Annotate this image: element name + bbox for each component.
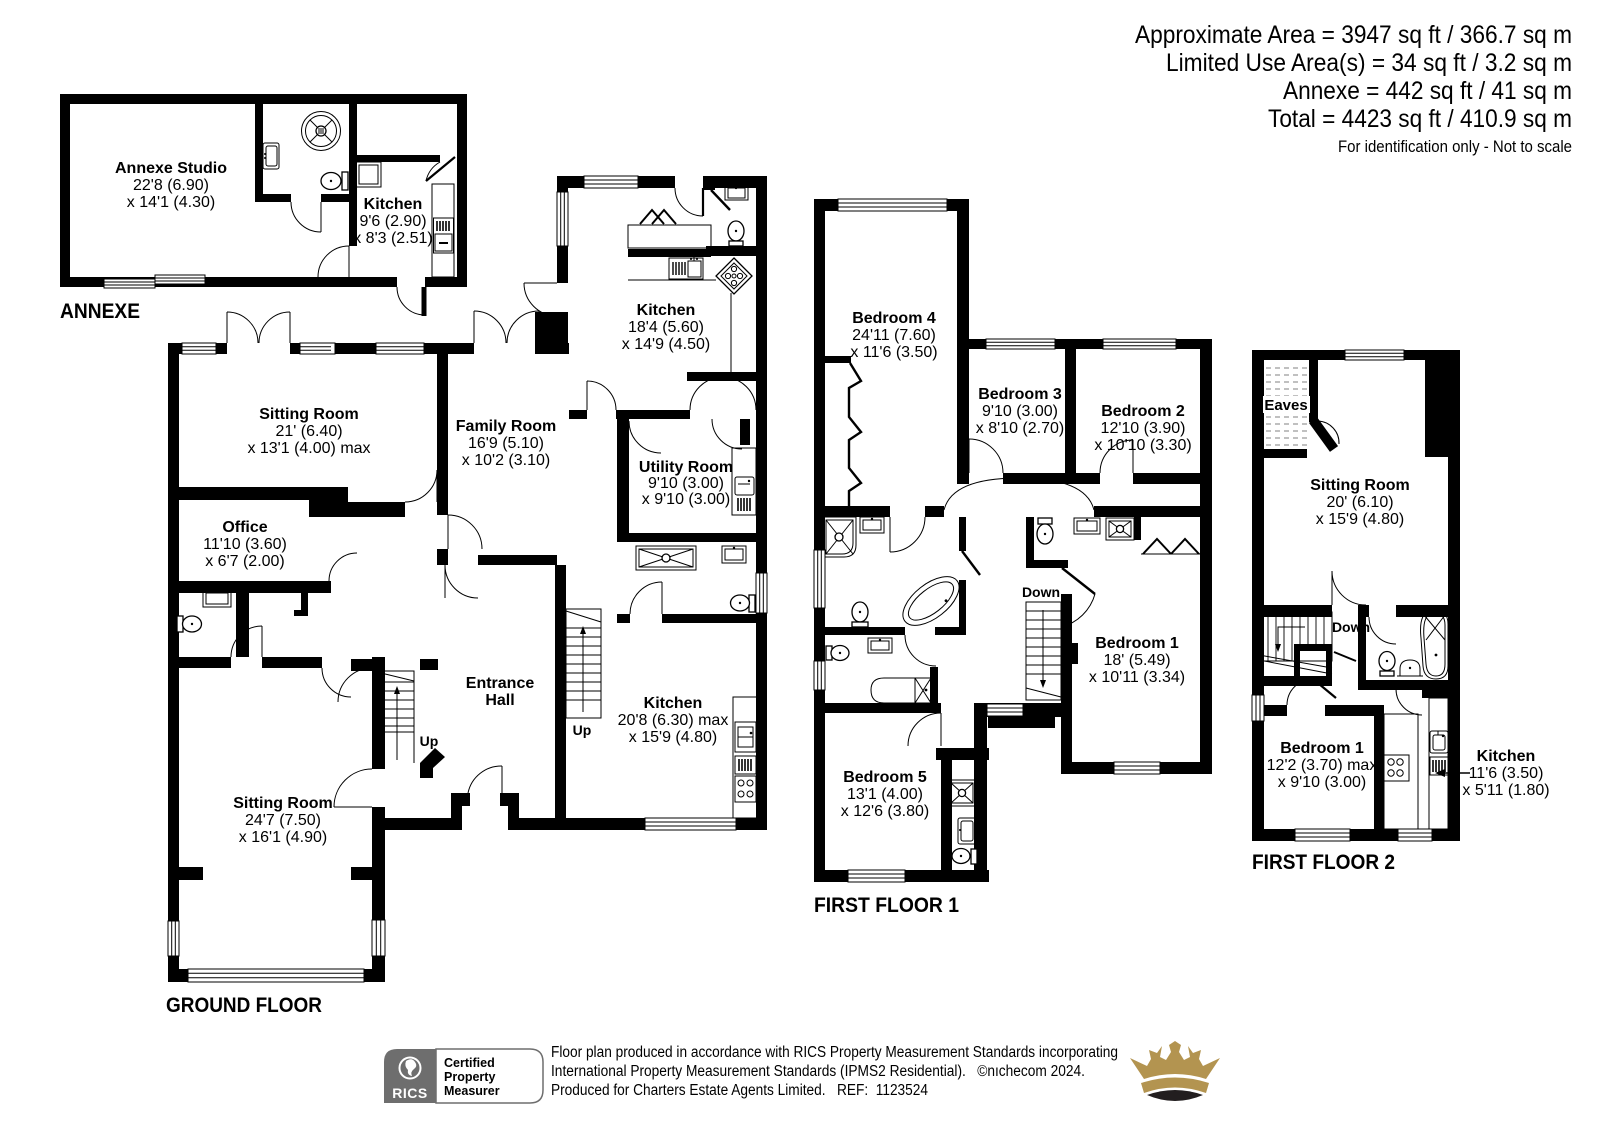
svg-text:Bedroom 2: Bedroom 2 bbox=[1101, 403, 1185, 420]
svg-text:Kitchen: Kitchen bbox=[637, 302, 696, 319]
svg-text:Kitchen: Kitchen bbox=[644, 695, 703, 712]
svg-text:Annexe = 442 sq ft / 41 sq m: Annexe = 442 sq ft / 41 sq m bbox=[1283, 77, 1572, 105]
svg-text:x 16'1 (4.90): x 16'1 (4.90) bbox=[239, 829, 327, 846]
svg-text:Produced for Charters Estate A: Produced for Charters Estate Agents Limi… bbox=[551, 1082, 928, 1099]
svg-text:GROUND FLOOR: GROUND FLOOR bbox=[166, 993, 322, 1017]
svg-text:x 15'9 (4.80): x 15'9 (4.80) bbox=[1316, 511, 1404, 528]
svg-text:For identification only - Not: For identification only - Not to scale bbox=[1338, 137, 1572, 156]
svg-text:Entrance: Entrance bbox=[466, 675, 535, 692]
svg-text:International Property Measure: International Property Measurement Stand… bbox=[551, 1063, 1085, 1080]
svg-text:Bedroom 5: Bedroom 5 bbox=[843, 769, 927, 786]
svg-text:x 10'10 (3.30): x 10'10 (3.30) bbox=[1094, 437, 1191, 454]
svg-text:Bedroom 4: Bedroom 4 bbox=[852, 310, 936, 327]
svg-text:11'6 (3.50): 11'6 (3.50) bbox=[1469, 765, 1544, 782]
svg-text:Certified: Certified bbox=[444, 1056, 495, 1070]
svg-text:x 11'6 (3.50): x 11'6 (3.50) bbox=[850, 344, 937, 361]
svg-text:Utility Room: Utility Room bbox=[639, 459, 733, 476]
svg-text:x 13'1 (4.00) max: x 13'1 (4.00) max bbox=[247, 440, 370, 457]
svg-text:24'7 (7.50): 24'7 (7.50) bbox=[245, 812, 321, 829]
svg-text:Approximate Area = 3947 sq ft: Approximate Area = 3947 sq ft / 366.7 sq… bbox=[1135, 21, 1572, 49]
svg-text:Kitchen: Kitchen bbox=[1477, 748, 1536, 765]
svg-text:x 6'7 (2.00): x 6'7 (2.00) bbox=[205, 553, 285, 570]
svg-text:Hall: Hall bbox=[485, 692, 514, 709]
svg-text:21' (6.40): 21' (6.40) bbox=[275, 423, 342, 440]
svg-text:11'10 (3.60): 11'10 (3.60) bbox=[203, 536, 287, 553]
svg-text:Property: Property bbox=[444, 1070, 495, 1084]
svg-text:FIRST FLOOR 1: FIRST FLOOR 1 bbox=[814, 893, 959, 917]
svg-text:x 8'10 (2.70): x 8'10 (2.70) bbox=[976, 420, 1064, 437]
svg-text:13'1 (4.00): 13'1 (4.00) bbox=[847, 786, 923, 803]
svg-text:x 12'6 (3.80): x 12'6 (3.80) bbox=[841, 803, 929, 820]
svg-text:Annexe Studio: Annexe Studio bbox=[115, 160, 227, 177]
svg-text:x 9'10 (3.00): x 9'10 (3.00) bbox=[642, 491, 730, 508]
svg-text:x 10'11 (3.34): x 10'11 (3.34) bbox=[1089, 669, 1185, 686]
svg-text:RICS: RICS bbox=[392, 1085, 427, 1101]
svg-text:24'11 (7.60): 24'11 (7.60) bbox=[852, 327, 936, 344]
svg-text:ANNEXE: ANNEXE bbox=[60, 299, 140, 323]
svg-text:Office: Office bbox=[222, 519, 267, 536]
svg-text:18' (5.49): 18' (5.49) bbox=[1103, 652, 1170, 669]
svg-text:20'8 (6.30) max: 20'8 (6.30) max bbox=[618, 712, 729, 729]
svg-text:x 8'3 (2.51): x 8'3 (2.51) bbox=[353, 230, 433, 247]
svg-text:20' (6.10): 20' (6.10) bbox=[1326, 494, 1393, 511]
svg-text:Down: Down bbox=[1022, 584, 1060, 600]
svg-text:Up: Up bbox=[573, 722, 592, 738]
svg-text:Bedroom 1: Bedroom 1 bbox=[1280, 740, 1364, 757]
svg-text:x 14'9 (4.50): x 14'9 (4.50) bbox=[622, 336, 710, 353]
svg-text:FIRST FLOOR 2: FIRST FLOOR 2 bbox=[1252, 850, 1395, 874]
svg-text:9'6 (2.90): 9'6 (2.90) bbox=[359, 213, 426, 230]
svg-text:Family Room: Family Room bbox=[456, 418, 556, 435]
svg-text:Limited Use Area(s) = 34 sq ft: Limited Use Area(s) = 34 sq ft / 3.2 sq … bbox=[1166, 49, 1572, 77]
svg-text:18'4 (5.60): 18'4 (5.60) bbox=[628, 319, 704, 336]
svg-text:x 14'1 (4.30): x 14'1 (4.30) bbox=[127, 194, 215, 211]
svg-text:x 9'10 (3.00): x 9'10 (3.00) bbox=[1278, 774, 1366, 791]
svg-text:Bedroom 3: Bedroom 3 bbox=[978, 386, 1062, 403]
svg-text:Measurer: Measurer bbox=[444, 1084, 500, 1098]
svg-text:Down: Down bbox=[1332, 619, 1370, 635]
svg-text:Eaves: Eaves bbox=[1264, 397, 1307, 414]
svg-text:x 5'11 (1.80): x 5'11 (1.80) bbox=[1462, 782, 1549, 799]
svg-text:Kitchen: Kitchen bbox=[364, 196, 423, 213]
svg-text:Sitting Room: Sitting Room bbox=[1310, 477, 1410, 494]
svg-text:Bedroom 1: Bedroom 1 bbox=[1095, 635, 1179, 652]
svg-text:Floor plan produced in accorda: Floor plan produced in accordance with R… bbox=[551, 1044, 1118, 1061]
svg-text:12'2 (3.70) max: 12'2 (3.70) max bbox=[1267, 757, 1378, 774]
svg-text:9'10 (3.00): 9'10 (3.00) bbox=[648, 475, 724, 492]
svg-text:x 15'9 (4.80): x 15'9 (4.80) bbox=[629, 729, 717, 746]
svg-text:Sitting Room: Sitting Room bbox=[259, 406, 359, 423]
svg-text:Up: Up bbox=[420, 733, 439, 749]
svg-text:Sitting Room: Sitting Room bbox=[233, 795, 333, 812]
svg-text:22'8 (6.90): 22'8 (6.90) bbox=[133, 177, 209, 194]
svg-text:12'10 (3.90): 12'10 (3.90) bbox=[1101, 420, 1186, 437]
svg-text:Total = 4423 sq ft / 410.9 sq: Total = 4423 sq ft / 410.9 sq m bbox=[1268, 105, 1572, 133]
svg-text:16'9 (5.10): 16'9 (5.10) bbox=[468, 435, 544, 452]
svg-text:x 10'2 (3.10): x 10'2 (3.10) bbox=[462, 452, 550, 469]
svg-text:9'10 (3.00): 9'10 (3.00) bbox=[982, 403, 1058, 420]
